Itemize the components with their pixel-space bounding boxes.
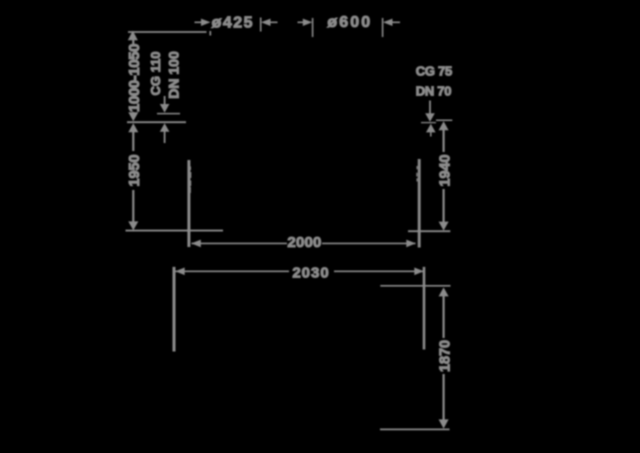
svg-text:1950: 1950 bbox=[127, 154, 143, 186]
svg-text:2030: 2030 bbox=[292, 264, 329, 281]
svg-text:DN 70: DN 70 bbox=[416, 84, 451, 99]
svg-text:1870: 1870 bbox=[437, 340, 453, 372]
svg-text:1000-1050: 1000-1050 bbox=[126, 44, 143, 112]
svg-text:CG 75: CG 75 bbox=[416, 64, 452, 79]
svg-text:ø425: ø425 bbox=[212, 14, 254, 31]
svg-text:1940: 1940 bbox=[437, 154, 453, 186]
svg-text:CG 110: CG 110 bbox=[148, 51, 163, 95]
svg-text:2000: 2000 bbox=[287, 234, 321, 251]
svg-text:ø600: ø600 bbox=[327, 14, 372, 31]
svg-text:DN 100: DN 100 bbox=[166, 51, 182, 99]
